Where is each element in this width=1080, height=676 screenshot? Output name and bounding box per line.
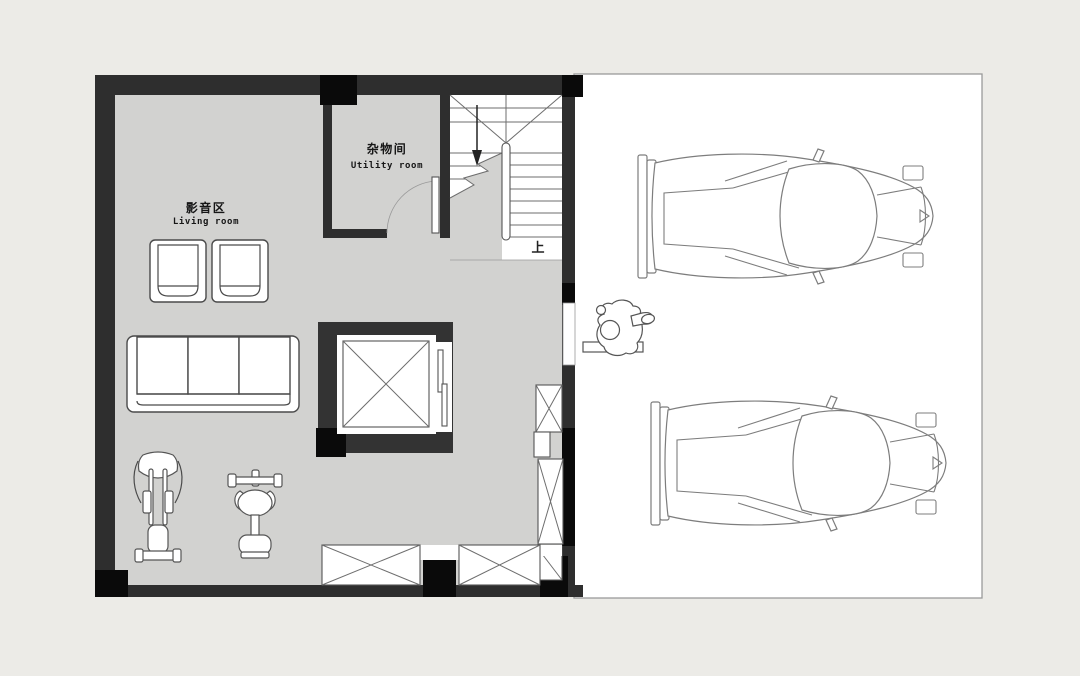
living-room-label-en: Living room [173,216,239,227]
armchair-2 [212,240,268,302]
living-room-label-zh: 影音区 [186,200,227,215]
structural-column [562,428,575,546]
floorplan-svg: 上 [0,0,1080,676]
utility-wall-left [323,95,332,238]
elevator-door-panel [442,384,447,426]
three-seat-sofa [127,336,299,412]
wall-bottom [95,585,583,597]
structural-column [562,75,583,97]
stair-railing [502,143,510,240]
utility-room-label-zh: 杂物间 [367,141,408,156]
utility-wall-bottom [323,229,387,238]
structural-column [562,283,575,305]
structural-column [95,570,128,597]
utility-door-leaf [432,177,439,233]
utility-room-label-en: Utility room [351,160,423,171]
elevator [316,322,453,457]
structural-column [320,75,357,105]
utility-wall-right [440,95,450,238]
wall-left [95,75,115,597]
stairs-up-label: 上 [531,241,544,256]
armchair-1 [150,240,206,302]
structural-column [423,560,456,597]
wall-opening [563,303,575,365]
person-head [601,321,620,340]
floorplan-canvas: 上 [0,0,1080,676]
